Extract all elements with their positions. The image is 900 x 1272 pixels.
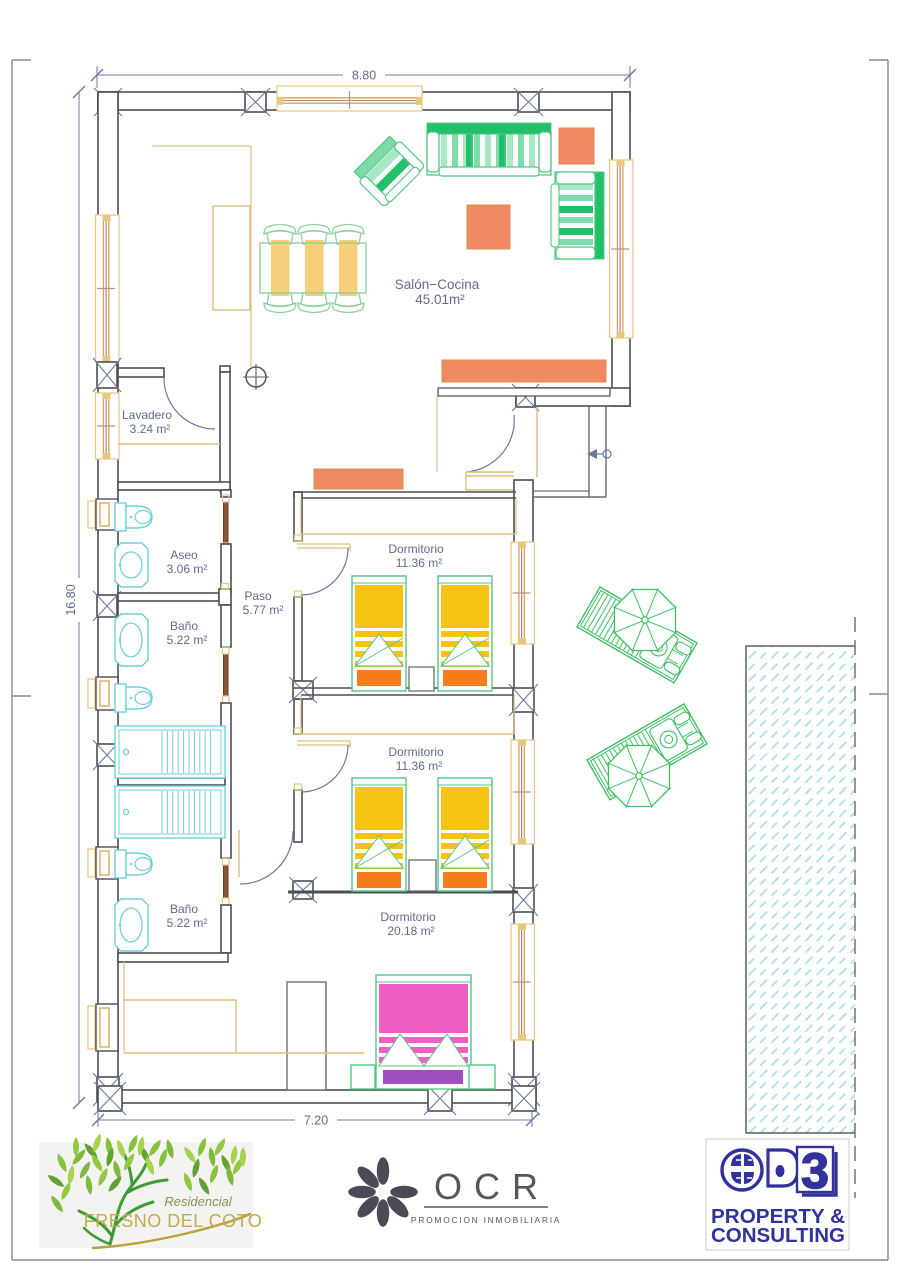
- svg-text:16.80: 16.80: [64, 584, 78, 615]
- svg-text:CONSULTING: CONSULTING: [711, 1224, 845, 1247]
- svg-text:Salón−Cocina: Salón−Cocina: [395, 277, 480, 292]
- svg-text:3.24 m²: 3.24 m²: [130, 422, 171, 436]
- svg-text:Paso: Paso: [244, 589, 272, 603]
- svg-text:OCR: OCR: [434, 1166, 550, 1207]
- svg-text:11.36 m²: 11.36 m²: [396, 759, 442, 773]
- svg-text:Aseo: Aseo: [170, 548, 198, 562]
- svg-text:Dormitorio: Dormitorio: [380, 910, 436, 924]
- svg-text:5.22 m²: 5.22 m²: [167, 633, 208, 647]
- svg-text:3: 3: [801, 1143, 829, 1199]
- svg-text:PROMOCION INMOBILIARIA: PROMOCION INMOBILIARIA: [411, 1215, 561, 1225]
- svg-text:11.36 m²: 11.36 m²: [396, 556, 442, 570]
- svg-text:5.77 m²: 5.77 m²: [243, 603, 284, 617]
- svg-text:20.18 m²: 20.18 m²: [387, 924, 434, 938]
- svg-text:Baño: Baño: [170, 902, 198, 916]
- svg-text:Residencial: Residencial: [164, 1194, 232, 1209]
- svg-text:Baño: Baño: [170, 619, 198, 633]
- svg-text:FRESNO DEL COTO: FRESNO DEL COTO: [84, 1211, 263, 1231]
- svg-text:3.06 m²: 3.06 m²: [167, 562, 208, 576]
- svg-text:Dormitorio: Dormitorio: [388, 542, 444, 556]
- svg-text:5.22 m²: 5.22 m²: [167, 916, 208, 930]
- svg-text:8.80: 8.80: [352, 69, 376, 83]
- svg-text:Lavadero: Lavadero: [122, 408, 172, 422]
- svg-text:Dormitorio: Dormitorio: [388, 745, 444, 759]
- svg-text:7.20: 7.20: [304, 1114, 328, 1128]
- svg-text:45.01m²: 45.01m²: [415, 292, 465, 307]
